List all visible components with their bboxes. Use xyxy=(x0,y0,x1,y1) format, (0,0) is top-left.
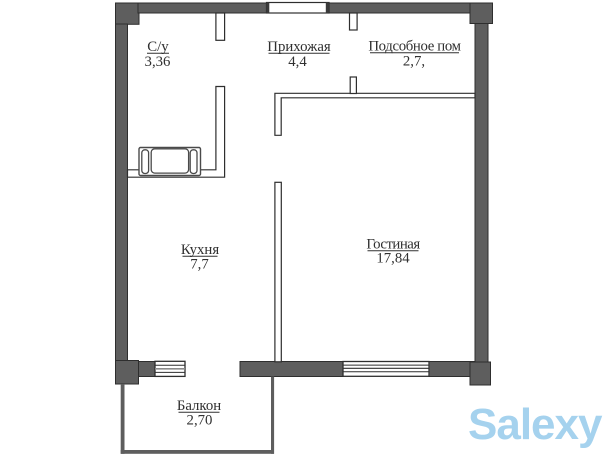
svg-text:Salexy: Salexy xyxy=(468,400,603,449)
svg-text:С/у: С/у xyxy=(147,39,169,55)
svg-text:2,7,: 2,7, xyxy=(403,54,425,70)
svg-text:Подсобное пом: Подсобное пом xyxy=(368,39,461,55)
svg-text:3,36: 3,36 xyxy=(145,54,171,70)
svg-text:4,4: 4,4 xyxy=(288,54,307,70)
svg-text:2,70: 2,70 xyxy=(187,413,213,429)
svg-text:7,7: 7,7 xyxy=(190,257,209,273)
svg-text:17,84: 17,84 xyxy=(376,251,410,267)
svg-text:Прихожая: Прихожая xyxy=(267,39,331,55)
